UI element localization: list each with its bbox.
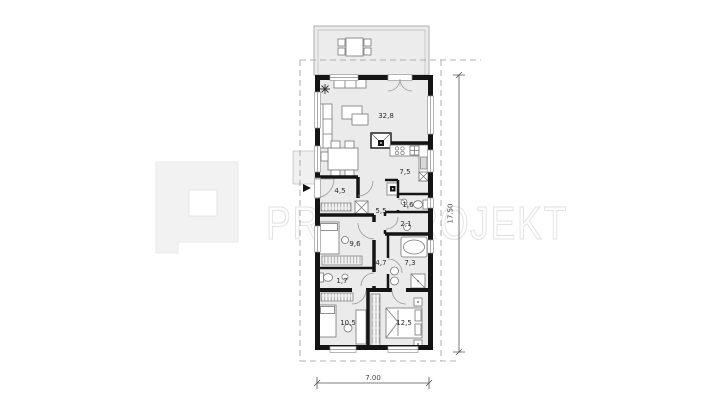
promprojekt-p-logo bbox=[156, 162, 238, 253]
floor-plan-canvas: PROMPROJEKT bbox=[0, 0, 720, 417]
room-area-hall: 4,5 bbox=[334, 187, 345, 195]
shoe-cabinet bbox=[321, 203, 351, 211]
room-area-kitchen: 7,5 bbox=[399, 168, 410, 176]
dimension-width-label: 7.00 bbox=[365, 374, 381, 382]
shower-icon bbox=[411, 274, 425, 288]
fireplace-icon bbox=[371, 133, 391, 148]
terrace bbox=[314, 26, 429, 75]
wardrobe bbox=[371, 294, 380, 348]
floor-plan-svg: PROMPROJEKT bbox=[0, 0, 720, 417]
room-area-living: 32,8 bbox=[378, 112, 394, 120]
bathtub-icon bbox=[401, 237, 427, 257]
room-area-bedroom-small: 9,6 bbox=[349, 240, 361, 248]
washing-machine-icon bbox=[355, 201, 368, 214]
tech-boiler bbox=[387, 183, 398, 195]
room-area-bedroom-left: 10,5 bbox=[340, 319, 356, 327]
plant-icon bbox=[320, 84, 330, 94]
entrance-arrow-icon bbox=[303, 184, 311, 192]
room-area-pantry: 2,1 bbox=[400, 220, 411, 228]
dining-table bbox=[328, 148, 358, 170]
washbasin-icon bbox=[391, 277, 399, 285]
entrance-door-opening bbox=[315, 178, 321, 198]
room-area-wc: 1,6 bbox=[402, 201, 414, 209]
washbasin-icon bbox=[391, 267, 399, 275]
wardrobe bbox=[322, 256, 362, 265]
room-area-bedroom-main: 12,5 bbox=[396, 319, 412, 327]
room-area-bathroom: 7,3 bbox=[404, 259, 415, 267]
room-area-toilet: 1,7 bbox=[336, 277, 347, 285]
room-area-corridor: 5,5 bbox=[375, 207, 386, 215]
wardrobe bbox=[321, 293, 353, 301]
sofa bbox=[319, 104, 332, 148]
side-table bbox=[352, 114, 368, 125]
entrance-porch bbox=[293, 151, 315, 184]
room-area-hallway: 4,7 bbox=[375, 259, 386, 267]
desk bbox=[356, 310, 366, 344]
terrace-floor bbox=[314, 26, 429, 75]
dimension-height-label: 17.50 bbox=[447, 203, 455, 223]
